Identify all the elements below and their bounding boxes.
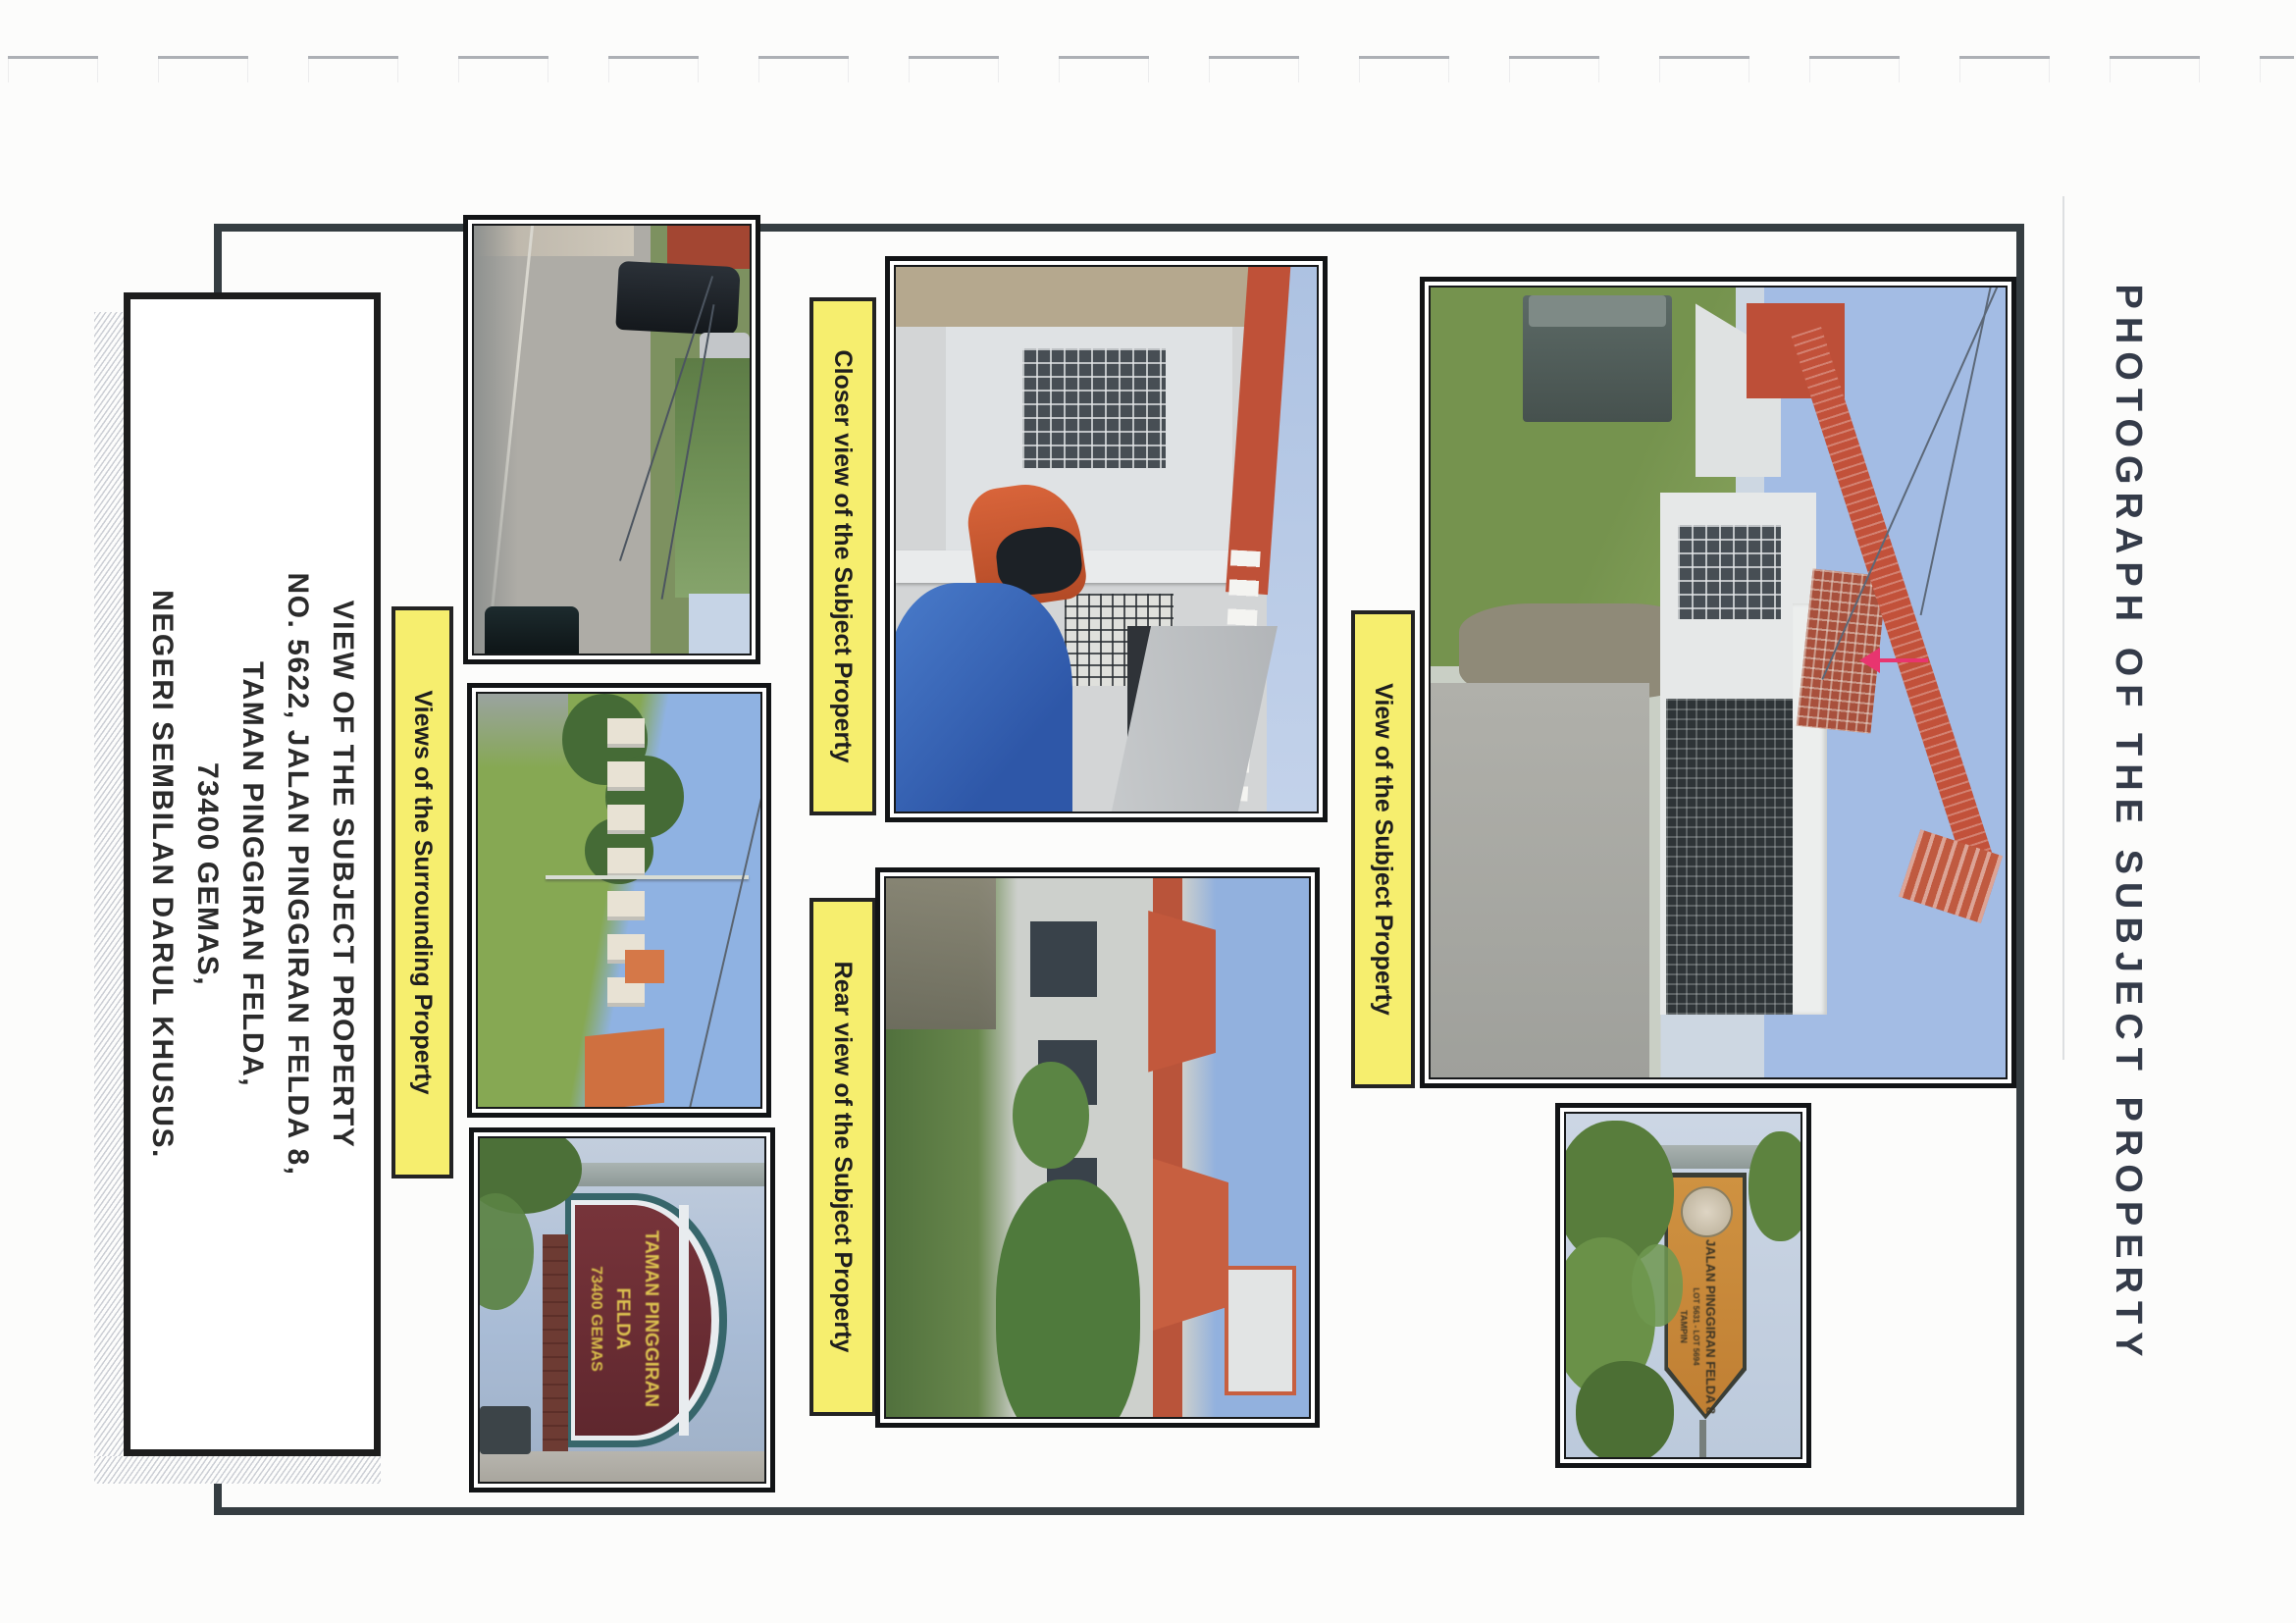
signboard-scene: TAMAN PINGGIRAN FELDA 73400 GEMAS: [480, 1138, 764, 1482]
address-line: VIEW OF THE SUBJECT PROPERTY: [320, 601, 365, 1149]
arrow-head: [1859, 648, 1880, 673]
photo-frame-inner: [476, 692, 762, 1109]
photo-taman-signboard: TAMAN PINGGIRAN FELDA 73400 GEMAS: [469, 1127, 775, 1492]
caption-text: Views of the Surrounding Property: [408, 690, 437, 1094]
caption-subject-view: View of the Subject Property: [1351, 610, 1415, 1088]
photo-frame-inner: [894, 265, 1319, 813]
field-scene: [478, 694, 760, 1107]
window-shape: [1030, 921, 1098, 997]
dark-car-shape: [485, 606, 579, 654]
caption-rear-view: Rear view of the Subject Property: [809, 898, 876, 1416]
foliage-shape: [1576, 1361, 1674, 1459]
taman-sign-text: TAMAN PINGGIRAN FELDA 73400 GEMAS: [582, 1221, 666, 1417]
sign-post-shape: [1699, 1420, 1706, 1458]
gravel-road-shape: [1431, 683, 1649, 1078]
caption-text: Closer view of the Subject Property: [829, 350, 858, 763]
power-line: [1920, 286, 1998, 615]
page-title: PHOTOGRAPH OF THE SUBJECT PROPERTY: [2094, 206, 2149, 1442]
scan-shadow-left: [94, 312, 128, 1480]
rear-view-scene: [886, 878, 1309, 1417]
road-sign-scene: JALAN PINGGIRAN FELDA 8 LOT 5631 - LOT 5…: [1566, 1114, 1800, 1457]
address-box: VIEW OF THE SUBJECT PROPERTY NO. 5622, J…: [124, 292, 381, 1456]
arch-sign-divider-shape: [679, 1205, 689, 1436]
sign-line: TAMAN PINGGIRAN: [637, 1230, 665, 1407]
photo-surrounding-field: [467, 683, 771, 1118]
street-scene: [474, 226, 750, 654]
sign-line: 73400 GEMAS: [583, 1266, 608, 1372]
scan-edge-line: [2062, 196, 2064, 1060]
photo-frame-inner: [472, 224, 752, 655]
red-roof-shape: [667, 226, 750, 269]
roadside-greenery-shape: [675, 358, 750, 598]
window-grille-shape: [1678, 525, 1781, 620]
caption-text-wrap: View of the Subject Property: [1355, 614, 1411, 1084]
caption-text: View of the Subject Property: [1369, 683, 1397, 1016]
binding-perforation-boxes: [8, 59, 2294, 82]
annotation-arrow-icon: [1859, 648, 1928, 673]
power-line: [685, 692, 762, 1109]
caption-text: Rear view of the Subject Property: [829, 962, 858, 1353]
address-line: 73400 GEMAS,: [184, 762, 230, 986]
caption-closer-view: Closer view of the Subject Property: [809, 297, 876, 815]
rocky-slope-shape: [886, 878, 996, 1029]
road-shape: [480, 1451, 764, 1483]
council-emblem-shape: [1681, 1186, 1733, 1238]
metal-gate-shape: [1666, 699, 1799, 1015]
roof-gable-shape: [1153, 1158, 1229, 1331]
address-line: TAMAN PINGGIRAN FELDA,: [230, 661, 275, 1087]
foliage-shape: [1748, 1131, 1802, 1241]
caption-text-wrap: Rear view of the Subject Property: [813, 902, 872, 1412]
photo-closer-view: [885, 256, 1328, 822]
tree-shape: [1013, 1062, 1089, 1170]
address-line: NEGERI SEMBILAN DARUL KHUSUS.: [139, 590, 184, 1159]
brick-pillar-shape: [543, 1234, 568, 1454]
distant-hill-shape: [478, 694, 568, 768]
address-line: NO. 5622, JALAN PINGGIRAN FELDA 8,: [275, 573, 320, 1177]
subject-property-scene: [1431, 288, 2006, 1077]
caption-text-wrap: Views of the Surrounding Property: [395, 610, 449, 1175]
photo-frame-inner: JALAN PINGGIRAN FELDA 8 LOT 5631 - LOT 5…: [1564, 1112, 1802, 1459]
foliage-shape: [1632, 1244, 1684, 1327]
roof-gable-shape: [1148, 911, 1216, 1073]
orange-roof-shape: [625, 950, 664, 983]
address-text-block: VIEW OF THE SUBJECT PROPERTY NO. 5622, J…: [130, 299, 374, 1449]
sign-line: JALAN PINGGIRAN FELDA 8: [1702, 1239, 1720, 1414]
sky-patch-shape: [689, 594, 750, 654]
tree-shape: [996, 1179, 1140, 1419]
small-gable-house-shape: [1225, 1266, 1296, 1395]
photo-road-sign: JALAN PINGGIRAN FELDA 8 LOT 5631 - LOT 5…: [1555, 1103, 1811, 1468]
road-shadow-shape: [474, 226, 518, 654]
window-grille-shape: [1022, 348, 1166, 468]
sign-line: LOT 5631 - LOT 5694: [1691, 1287, 1702, 1365]
scan-shadow-bottom: [94, 1456, 381, 1484]
light-pole-shape: [546, 875, 749, 879]
parked-suv-shape: [615, 261, 740, 336]
photo-subject-property: [1420, 277, 2016, 1088]
parked-cars-shape: [480, 1406, 531, 1454]
closer-view-scene: [896, 267, 1317, 811]
arrow-shaft: [1877, 658, 1928, 662]
sign-line: FELDA: [608, 1287, 637, 1349]
sign-line: TAMPIN: [1678, 1310, 1691, 1343]
caption-surrounding-property: Views of the Surrounding Property: [391, 606, 453, 1178]
caption-text-wrap: Closer view of the Subject Property: [813, 301, 872, 811]
photo-frame-inner: TAMAN PINGGIRAN FELDA 73400 GEMAS: [478, 1136, 766, 1484]
photo-frame-inner: [884, 876, 1311, 1419]
dumpster-lid-shape: [1529, 295, 1667, 327]
photo-surrounding-street: [463, 215, 760, 664]
orange-roof-shape: [585, 1028, 664, 1109]
page-title-text: PHOTOGRAPH OF THE SUBJECT PROPERTY: [2107, 284, 2149, 1364]
photo-frame-inner: [1429, 286, 2008, 1079]
photo-rear-view: [875, 867, 1320, 1428]
scanned-document-page: PHOTOGRAPH OF THE SUBJECT PROPERTY VIEW …: [0, 0, 2296, 1623]
blue-tarp-car-shape: [894, 583, 1072, 813]
